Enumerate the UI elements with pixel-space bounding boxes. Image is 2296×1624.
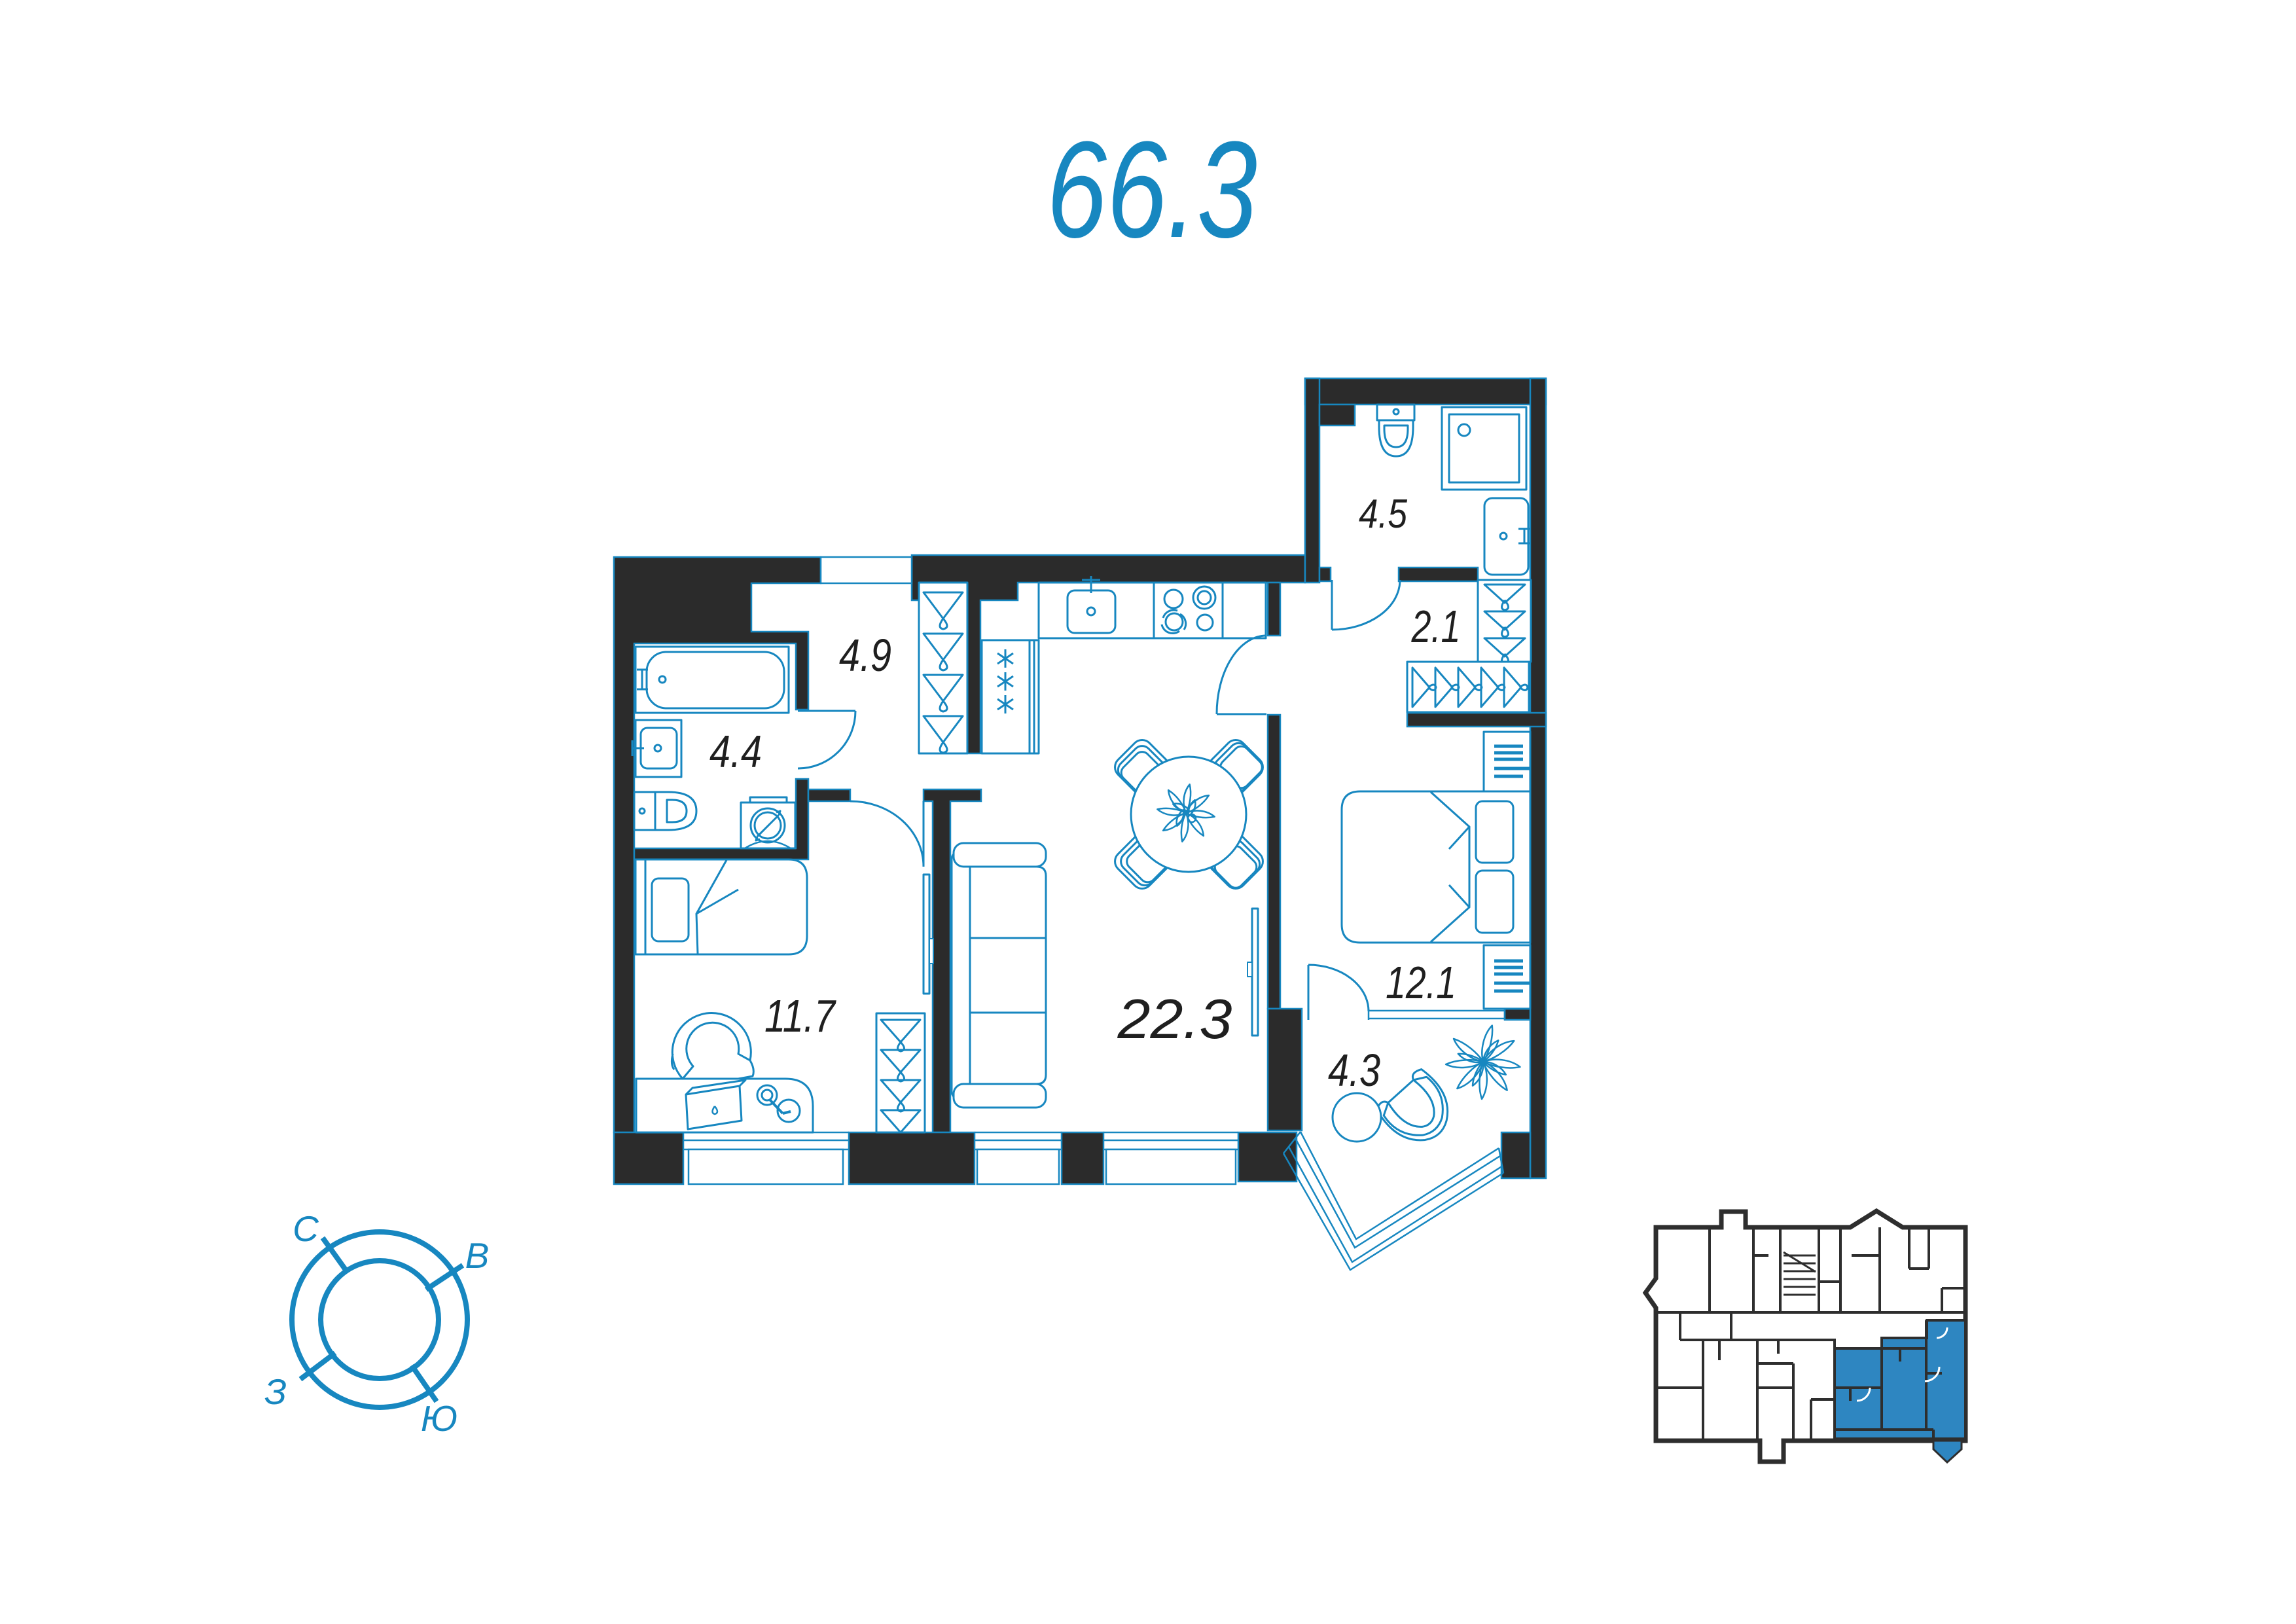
svg-text:12.1: 12.1 [1386, 957, 1456, 1008]
svg-text:З: З [264, 1371, 287, 1412]
svg-text:Ю: Ю [421, 1398, 457, 1439]
svg-text:11.7: 11.7 [764, 990, 837, 1041]
svg-text:С: С [293, 1208, 319, 1249]
svg-text:2.1: 2.1 [1411, 601, 1461, 652]
svg-text:4.4: 4.4 [709, 726, 762, 777]
svg-text:66.3: 66.3 [1047, 113, 1257, 266]
svg-text:22.3: 22.3 [1117, 988, 1232, 1051]
svg-text:4.5: 4.5 [1359, 492, 1407, 537]
svg-text:4.9: 4.9 [839, 630, 891, 681]
svg-text:4.3: 4.3 [1328, 1045, 1380, 1096]
svg-text:В: В [465, 1235, 490, 1276]
